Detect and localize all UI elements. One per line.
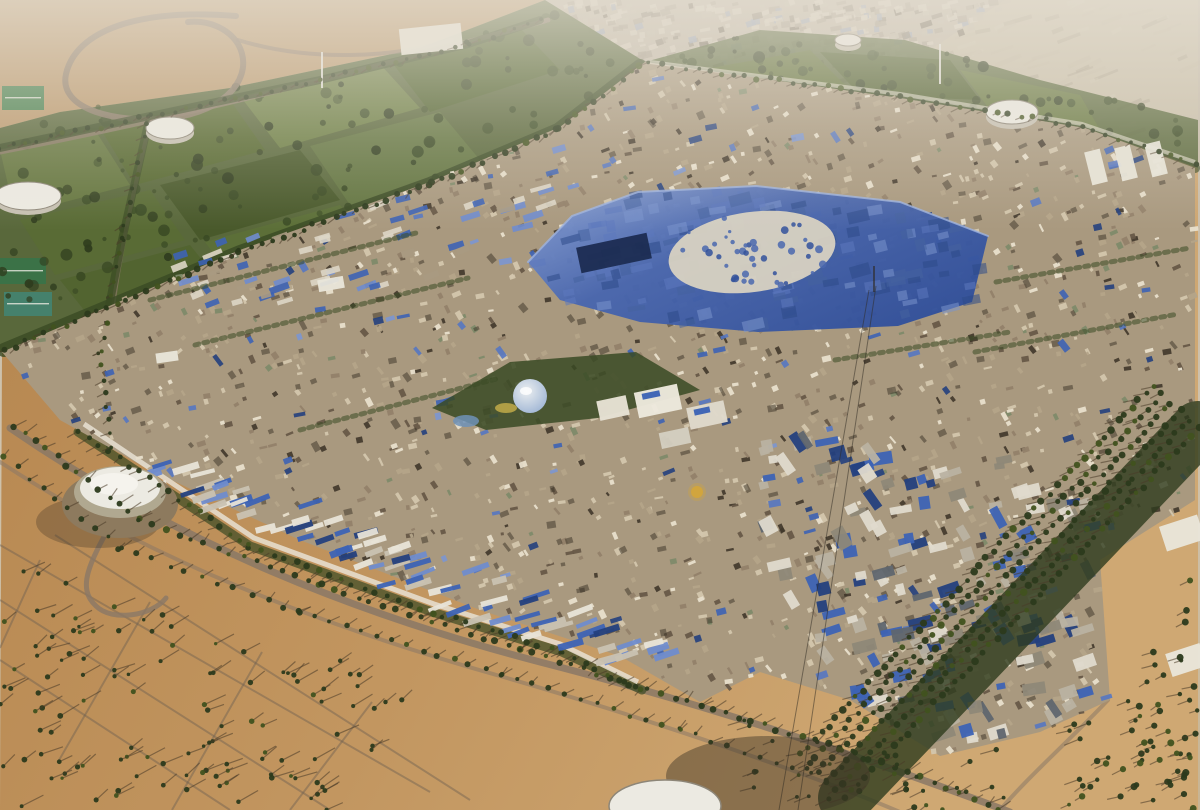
palm-tree	[269, 773, 273, 777]
palm-tree	[898, 683, 903, 688]
palm-tree	[1105, 448, 1112, 455]
palm-tree	[1101, 472, 1106, 477]
palm-tree	[847, 701, 852, 706]
palm-tree	[959, 658, 964, 663]
palm-tree	[786, 732, 790, 736]
palm-tree	[281, 556, 287, 562]
palm-tree	[241, 649, 246, 654]
palm-tree	[1125, 497, 1132, 504]
palm-tree	[1004, 606, 1010, 612]
palm-tree	[60, 659, 63, 662]
palm-tree	[970, 568, 978, 576]
palm-tree	[321, 687, 326, 692]
palm-tree	[1136, 703, 1143, 710]
palm-tree	[1079, 793, 1085, 799]
palm-tree	[36, 571, 40, 575]
palm-tree	[202, 744, 206, 748]
courtyard-dot	[712, 242, 717, 247]
city-block	[80, 390, 84, 394]
palm-tree	[1020, 589, 1027, 596]
palm-tree	[856, 711, 861, 716]
palm-tree	[1071, 517, 1077, 523]
palm-tree	[865, 736, 870, 741]
palm-tree	[890, 729, 896, 735]
palm-tree	[996, 583, 1001, 588]
palm-tree	[899, 698, 905, 704]
palm-tree	[1035, 538, 1041, 544]
courtyard-dot	[806, 242, 813, 249]
palm-tree	[105, 307, 109, 311]
courtyard-dot	[752, 263, 757, 268]
palm-tree	[75, 764, 80, 769]
tree-cluster	[5, 293, 11, 299]
palm-tree	[112, 280, 116, 284]
palm-tree	[1033, 562, 1038, 567]
palm-tree	[1022, 550, 1029, 557]
palm-tree	[989, 590, 994, 595]
palm-tree	[108, 496, 112, 500]
city-block	[816, 388, 820, 392]
palm-tree	[499, 672, 504, 677]
palm-tree	[12, 667, 16, 671]
palm-tree	[994, 747, 999, 752]
palm-tree	[901, 713, 908, 720]
city-block	[361, 349, 366, 354]
palm-tree	[1084, 486, 1091, 493]
palm-tree	[218, 784, 222, 788]
palm-tree	[983, 612, 988, 617]
palm-tree	[1150, 649, 1157, 656]
palm-tree	[326, 572, 332, 578]
palm-tree	[62, 463, 69, 470]
city-block	[793, 350, 798, 355]
courtyard-dot	[743, 250, 749, 256]
courtyard-dot	[743, 243, 747, 247]
palm-tree	[960, 673, 966, 679]
palm-tree	[279, 758, 284, 763]
palm-tree	[994, 635, 1001, 642]
palm-tree	[903, 781, 909, 787]
palm-tree	[952, 679, 957, 684]
palm-tree	[1103, 760, 1109, 766]
palm-tree	[176, 276, 181, 281]
palm-tree	[1057, 515, 1064, 522]
palm-tree	[879, 718, 885, 724]
palm-tree	[107, 535, 111, 539]
city-block	[406, 505, 410, 510]
palm-tree	[169, 624, 174, 629]
palm-tree	[214, 774, 219, 779]
palm-tree	[874, 669, 882, 677]
palm-tree	[312, 614, 316, 618]
palm-tree	[215, 582, 220, 587]
palm-tree	[529, 680, 534, 685]
palm-tree	[292, 233, 297, 238]
palm-tree	[228, 533, 232, 537]
palm-tree	[60, 776, 63, 779]
city-block	[410, 258, 414, 264]
palm-tree	[831, 714, 838, 721]
palm-tree	[883, 680, 889, 686]
palm-tree	[1067, 468, 1073, 474]
palm-tree	[131, 689, 136, 694]
palm-tree	[1137, 414, 1143, 420]
palm-tree	[338, 659, 342, 663]
palm-tree	[57, 759, 62, 764]
palm-tree	[1094, 758, 1100, 764]
palm-tree	[38, 728, 43, 733]
palm-tree	[1145, 391, 1150, 396]
palm-tree	[157, 483, 162, 488]
palm-tree	[1037, 555, 1042, 560]
palm-tree	[481, 636, 487, 642]
palm-tree	[452, 656, 458, 662]
palm-tree	[882, 738, 887, 743]
palm-tree	[106, 417, 111, 422]
palm-tree	[881, 664, 888, 671]
palm-tree	[41, 330, 47, 336]
palm-tree	[1167, 779, 1172, 784]
palm-tree	[1158, 390, 1164, 396]
palm-tree	[163, 526, 170, 533]
palm-tree	[959, 618, 966, 625]
palm-tree	[200, 770, 205, 775]
palm-tree	[1157, 446, 1162, 451]
palm-tree	[322, 788, 327, 793]
palm-tree	[1116, 488, 1122, 494]
palm-tree	[1128, 444, 1134, 450]
palm-tree	[105, 320, 110, 325]
palm-tree	[1167, 739, 1174, 746]
palm-tree	[207, 515, 213, 521]
palm-tree	[118, 455, 123, 460]
palm-tree	[893, 752, 899, 758]
palm-tree	[1089, 449, 1094, 454]
palm-tree	[1178, 692, 1182, 696]
palm-tree	[616, 677, 622, 683]
palm-tree	[246, 542, 251, 547]
palm-tree	[1078, 492, 1083, 497]
palm-tree	[673, 696, 679, 702]
palm-tree	[115, 788, 121, 794]
palm-tree	[1182, 619, 1189, 626]
palm-tree	[826, 724, 832, 730]
solar-panel	[578, 229, 591, 242]
palm-tree	[1126, 480, 1132, 486]
palm-tree	[297, 610, 303, 616]
palm-tree	[1144, 679, 1149, 684]
city-block	[931, 748, 937, 754]
palm-tree	[904, 660, 909, 665]
palm-tree	[921, 690, 928, 697]
palm-tree	[270, 239, 275, 244]
palm-tree	[226, 552, 230, 556]
palm-tree	[951, 607, 957, 613]
palm-tree	[248, 680, 253, 685]
palm-tree	[963, 635, 968, 640]
palm-tree	[136, 468, 142, 474]
palm-tree	[1009, 567, 1016, 574]
palm-tree	[341, 591, 347, 597]
palm-tree	[286, 671, 290, 675]
palm-tree	[948, 631, 954, 637]
courtyard-dot	[748, 279, 754, 285]
tree-cluster	[164, 253, 172, 261]
palm-tree	[194, 265, 201, 272]
palm-tree	[1080, 509, 1086, 515]
palm-tree	[1096, 455, 1100, 459]
palm-tree	[73, 616, 77, 620]
palm-tree	[429, 620, 434, 625]
palm-tree	[1161, 672, 1167, 678]
palm-tree	[1041, 514, 1046, 519]
palm-tree	[545, 685, 551, 691]
courtyard-dot	[730, 240, 734, 244]
palm-tree	[380, 603, 387, 610]
palm-tree	[1070, 486, 1075, 491]
palm-tree	[959, 599, 964, 604]
palm-tree	[893, 706, 898, 711]
palm-tree	[1043, 529, 1049, 535]
palm-tree	[971, 796, 977, 802]
palm-tree	[944, 687, 949, 692]
palm-tree	[434, 653, 440, 659]
city-block	[459, 269, 465, 275]
palm-tree	[214, 642, 217, 645]
palm-tree	[850, 734, 856, 740]
palm-tree	[591, 666, 597, 672]
palm-tree	[990, 785, 995, 790]
palm-tree	[1187, 755, 1192, 760]
palm-tree	[1152, 384, 1157, 389]
palm-tree	[1020, 576, 1026, 582]
palm-tree	[266, 597, 272, 603]
palm-tree	[455, 628, 460, 633]
palm-tree	[943, 614, 949, 620]
palm-tree	[1139, 468, 1145, 474]
palm-tree	[992, 604, 998, 610]
palm-tree	[348, 582, 353, 587]
pond	[453, 415, 479, 427]
palm-tree	[1054, 481, 1061, 488]
palm-tree	[839, 706, 847, 714]
palm-tree	[1122, 468, 1127, 473]
palm-tree	[633, 684, 639, 690]
palm-tree	[327, 619, 331, 623]
palm-tree	[81, 673, 85, 677]
palm-tree	[965, 647, 971, 653]
palm-tree	[357, 596, 361, 600]
palm-tree	[911, 669, 916, 674]
palm-tree	[112, 668, 116, 672]
palm-tree	[1016, 559, 1023, 566]
palm-tree	[78, 630, 82, 634]
tree-cluster	[102, 262, 113, 273]
palm-tree	[1124, 428, 1131, 435]
palm-tree	[1019, 519, 1025, 525]
palm-tree	[108, 431, 111, 434]
city-block	[413, 416, 421, 423]
palm-tree	[260, 241, 265, 246]
palm-tree	[1151, 723, 1157, 729]
palm-tree	[865, 679, 871, 685]
palm-tree	[1005, 590, 1011, 596]
palm-tree	[1183, 607, 1190, 614]
palm-tree	[103, 390, 108, 395]
courtyard-dot	[819, 260, 827, 268]
palm-tree	[328, 667, 333, 672]
palm-tree	[856, 741, 863, 748]
palm-tree	[894, 721, 901, 728]
palm-tree	[905, 673, 912, 680]
palm-tree	[954, 625, 960, 631]
palm-tree	[306, 578, 311, 583]
palm-tree	[1192, 731, 1198, 737]
palm-tree	[57, 713, 63, 719]
palm-tree	[1181, 791, 1187, 797]
palm-tree	[125, 509, 130, 514]
palm-tree	[867, 749, 873, 755]
palm-tree	[1129, 404, 1136, 411]
palm-tree	[81, 656, 85, 660]
palm-tree	[736, 716, 742, 722]
city-block	[1178, 367, 1182, 370]
palm-tree	[176, 498, 180, 502]
aerial-city-render-canvas	[0, 0, 1200, 810]
palm-tree	[463, 619, 468, 624]
palm-tree	[421, 649, 427, 655]
palm-tree	[1062, 475, 1068, 481]
palm-tree	[937, 621, 944, 628]
courtyard-dot	[778, 241, 786, 249]
palm-tree	[39, 752, 44, 757]
tree-cluster	[61, 249, 73, 261]
palm-tree	[898, 737, 903, 742]
palm-tree	[42, 445, 48, 451]
palm-tree	[185, 774, 189, 778]
palm-tree	[65, 505, 70, 510]
courtyard-dot	[741, 278, 746, 283]
palm-tree	[22, 757, 28, 763]
courtyard-dot	[803, 238, 807, 242]
palm-tree	[917, 658, 924, 665]
palm-tree	[49, 730, 54, 735]
palm-tree	[220, 724, 224, 728]
palm-tree	[842, 725, 848, 731]
palm-tree	[136, 518, 140, 522]
courtyard-dot	[761, 255, 767, 261]
palm-tree	[331, 586, 338, 593]
palm-tree	[1115, 416, 1123, 424]
palm-tree	[177, 532, 184, 539]
palm-tree	[1049, 562, 1055, 568]
palm-tree	[200, 575, 204, 579]
palm-tree	[383, 700, 387, 704]
palm-tree	[515, 677, 519, 681]
palm-tree	[939, 691, 946, 698]
palm-tree	[1091, 517, 1096, 522]
palm-tree	[1092, 481, 1097, 486]
palm-tree	[891, 689, 896, 694]
palm-tree	[971, 658, 979, 666]
palm-tree	[935, 609, 940, 614]
palm-tree	[1056, 570, 1063, 577]
palm-tree	[87, 435, 92, 440]
palm-tree	[20, 804, 24, 808]
palm-tree	[1010, 582, 1016, 588]
palm-tree	[942, 600, 949, 607]
palm-tree	[115, 265, 119, 269]
palm-tree	[371, 590, 377, 596]
city-block	[725, 478, 730, 483]
palm-tree	[1148, 739, 1154, 745]
palm-tree	[186, 751, 190, 755]
palm-tree	[1066, 510, 1071, 515]
palm-tree	[920, 620, 927, 627]
palm-tree	[430, 611, 437, 618]
palm-tree	[882, 750, 887, 755]
palm-tree	[955, 786, 959, 790]
palm-tree	[292, 572, 299, 579]
palm-tree	[1086, 720, 1091, 725]
palm-tree	[1021, 534, 1026, 539]
palm-tree	[28, 478, 32, 482]
palm-tree	[81, 764, 85, 768]
palm-tree	[263, 750, 267, 754]
palm-tree	[1106, 755, 1111, 760]
palm-tree	[1114, 511, 1120, 517]
palm-tree	[45, 674, 50, 679]
palm-tree	[356, 684, 360, 688]
courtyard-dot	[788, 248, 795, 255]
palm-tree	[389, 637, 394, 642]
palm-tree	[1055, 556, 1060, 561]
palm-tree	[1135, 437, 1141, 443]
courtyard-dot	[716, 254, 721, 259]
palm-tree	[659, 722, 665, 728]
tree-cluster	[10, 248, 18, 256]
palm-tree	[374, 634, 379, 639]
palm-tree	[1136, 453, 1141, 458]
palm-tree	[207, 260, 213, 266]
palm-tree	[611, 706, 616, 711]
palm-tree	[1002, 532, 1009, 539]
palm-tree	[1148, 439, 1154, 445]
palm-tree	[202, 702, 207, 707]
palm-tree	[1171, 415, 1177, 421]
palm-tree	[417, 606, 423, 612]
palm-tree	[258, 547, 264, 553]
palm-tree	[181, 568, 187, 574]
palm-tree	[1151, 798, 1156, 803]
palm-tree	[309, 797, 313, 801]
palm-tree	[926, 669, 933, 676]
palm-tree	[359, 629, 363, 633]
palm-tree	[871, 710, 876, 715]
palm-tree	[1155, 702, 1161, 708]
palm-tree	[876, 688, 884, 696]
palm-tree	[862, 717, 869, 724]
palm-tree	[928, 685, 935, 692]
palm-tree	[710, 706, 717, 713]
palm-tree	[1148, 476, 1154, 482]
palm-tree	[965, 593, 971, 599]
palm-tree	[1024, 608, 1029, 613]
palm-tree	[694, 732, 698, 736]
palm-tree	[1063, 564, 1069, 570]
palm-tree	[507, 643, 512, 648]
palm-tree	[1112, 496, 1117, 501]
